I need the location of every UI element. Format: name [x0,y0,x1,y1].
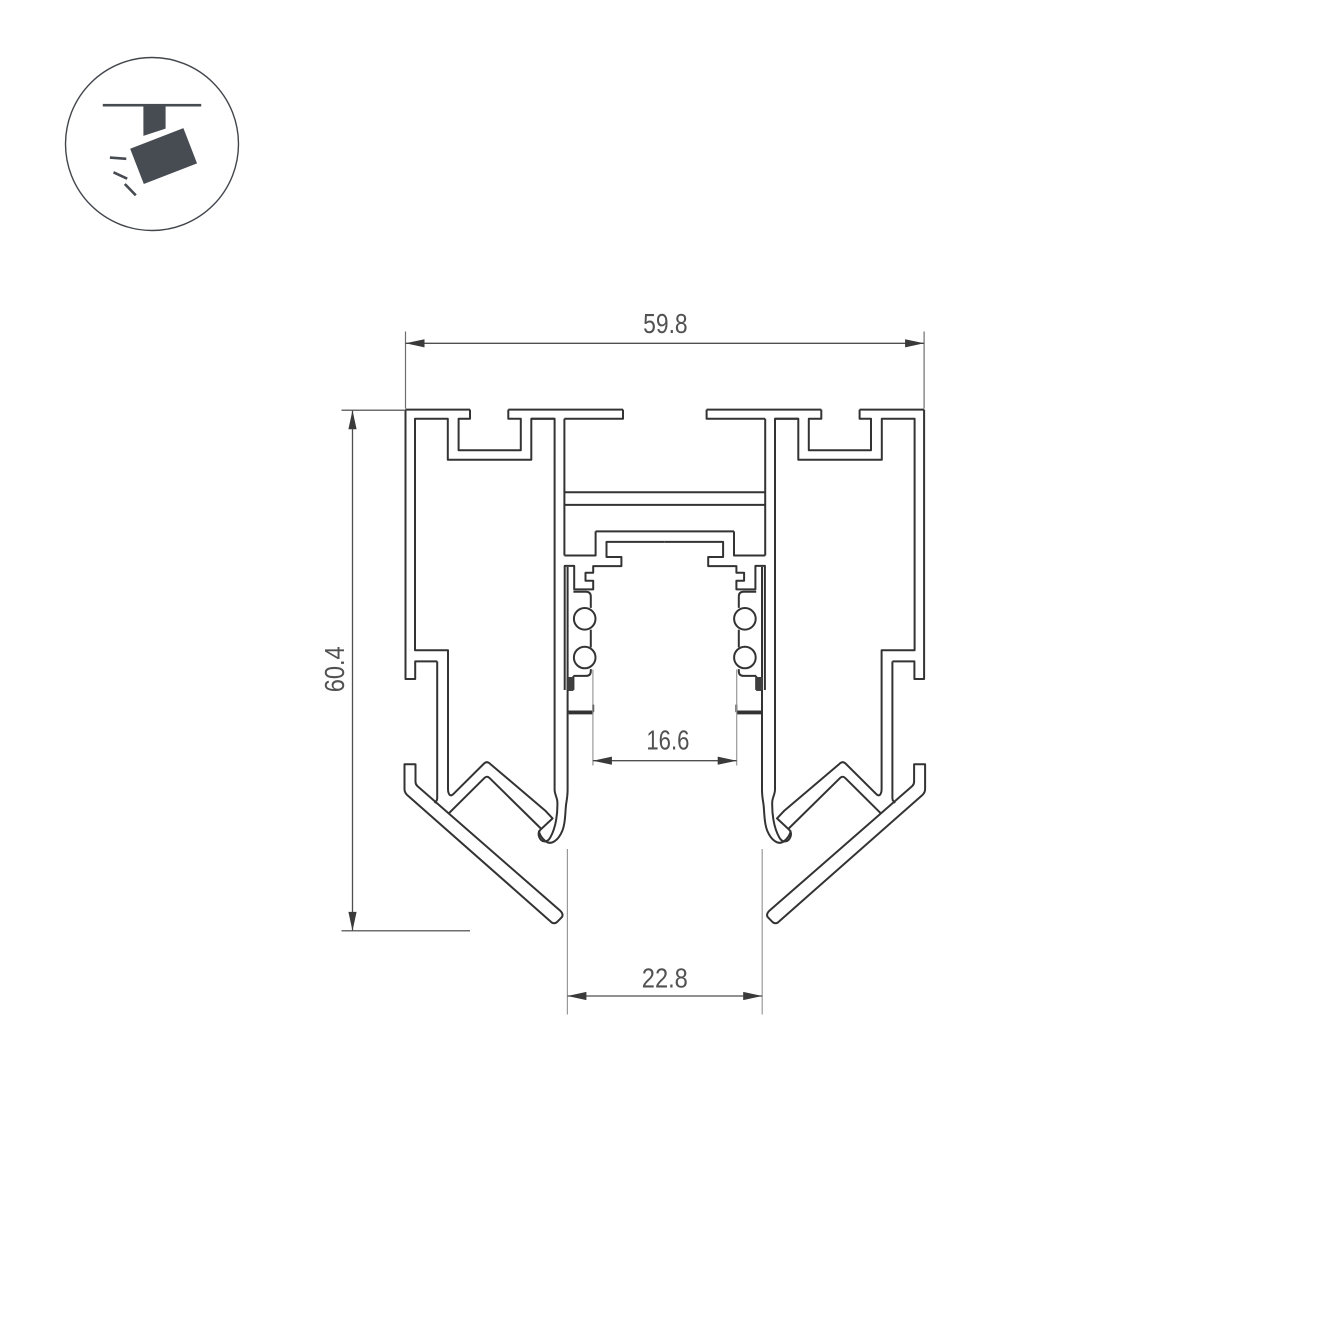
svg-text:22.8: 22.8 [642,962,688,993]
svg-text:60.4: 60.4 [319,646,350,692]
svg-text:59.8: 59.8 [643,308,688,339]
svg-text:16.6: 16.6 [646,725,689,756]
